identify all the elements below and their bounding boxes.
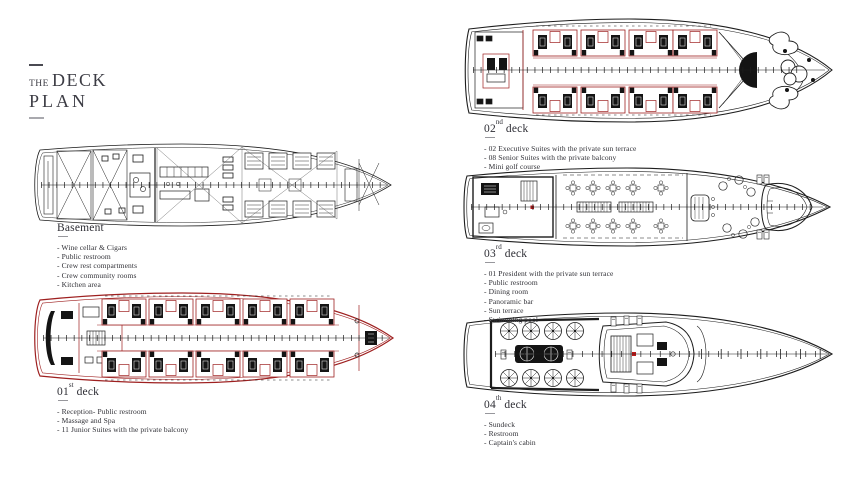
label-rule — [58, 236, 68, 237]
label-rule — [58, 400, 68, 401]
list-item: - Swimming pool — [484, 315, 613, 324]
list-item: - Restroom — [484, 429, 536, 438]
list-item: - Reception- Public restroom — [57, 407, 188, 416]
deck-label-03: 03rddeck — [484, 246, 613, 260]
list-item: - 01 President with the private sun terr… — [484, 269, 613, 278]
label-rule — [485, 137, 495, 138]
deck-section-04: 04thdeck - Sundeck - Restroom - Captain'… — [484, 397, 536, 448]
deck-04-plan-drawing — [461, 312, 837, 397]
title-deck: DECK — [52, 70, 107, 91]
title-bottom-rule — [29, 117, 44, 119]
list-item: - 11 Junior Suites with the private balc… — [57, 425, 188, 434]
list-item: - Sun terrace — [484, 306, 613, 315]
list-item: - Crew community rooms — [57, 271, 137, 280]
deck-feature-list-basement: - Wine cellar & Cigars - Public restroom… — [57, 243, 137, 289]
deck-label-01: 01stdeck — [57, 384, 188, 398]
deck-feature-list-01: - Reception- Public restroom - Massage a… — [57, 407, 188, 435]
deck-section-02: 02nddeck - 02 Executive Suites with the … — [484, 121, 636, 172]
deck-label-basement: Basement — [57, 220, 137, 234]
list-item: - Public restroom — [484, 278, 613, 287]
title-top-rule — [29, 64, 43, 66]
title-the: THE — [29, 79, 49, 89]
deck-03-plan-drawing — [461, 167, 837, 247]
list-item: - Massage and Spa — [57, 416, 188, 425]
title-plan: PLAN — [29, 91, 88, 112]
basement-plan-drawing — [27, 143, 397, 227]
page-title: THE DECK PLAN — [29, 64, 107, 119]
list-item: - Crew rest compartments — [57, 261, 137, 270]
deck-label-04: 04thdeck — [484, 397, 536, 411]
list-item: - Kitchen area — [57, 280, 137, 289]
deck-02-plan-drawing — [461, 18, 837, 123]
list-item: - Captain's cabin — [484, 438, 536, 447]
list-item: - 08 Senior Suites with the private balc… — [484, 153, 636, 162]
deck-section-01: 01stdeck - Reception- Public restroom - … — [57, 384, 188, 435]
deck-section-03: 03rddeck - 01 President with the private… — [484, 246, 613, 325]
deck-label-02: 02nddeck — [484, 121, 636, 135]
deck-feature-list-03: - 01 President with the private sun terr… — [484, 269, 613, 325]
deck-plan-page: THE DECK PLAN — [0, 0, 848, 477]
deck-section-basement: Basement - Wine cellar & Cigars - Public… — [57, 220, 137, 289]
deck-01-plan-drawing — [27, 291, 399, 385]
deck-feature-list-02: - 02 Executive Suites with the private s… — [484, 144, 636, 172]
list-item: - Dining room — [484, 287, 613, 296]
list-item: - 02 Executive Suites with the private s… — [484, 144, 636, 153]
list-item: - Panoramic bar — [484, 297, 613, 306]
deck-feature-list-04: - Sundeck - Restroom - Captain's cabin — [484, 420, 536, 448]
list-item: - Sundeck — [484, 420, 536, 429]
list-item: - Wine cellar & Cigars — [57, 243, 137, 252]
list-item: - Mini golf course — [484, 162, 636, 171]
label-rule — [485, 262, 495, 263]
list-item: - Public restroom — [57, 252, 137, 261]
label-rule — [485, 413, 495, 414]
